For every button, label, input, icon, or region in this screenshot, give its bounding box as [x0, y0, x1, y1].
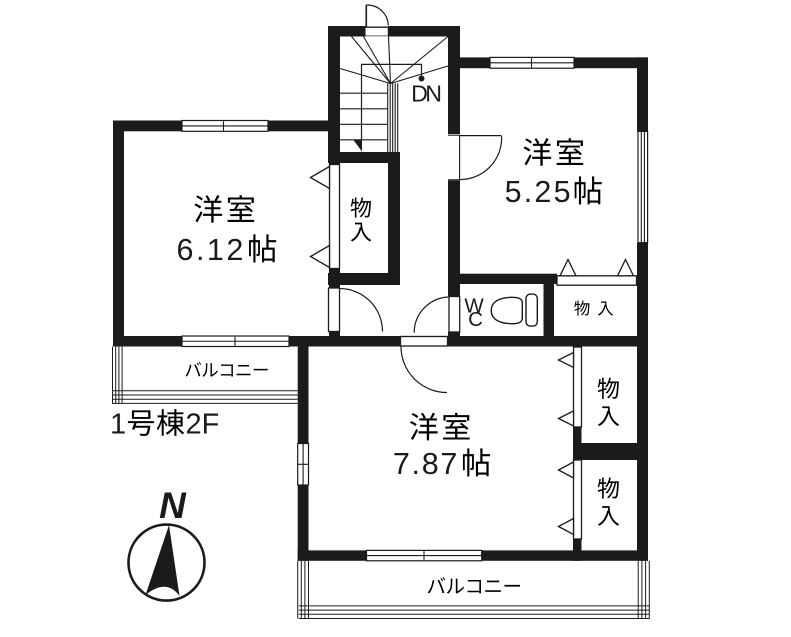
svg-text:N: N	[159, 485, 187, 526]
svg-text:6.12: 6.12	[177, 233, 246, 267]
svg-text:2F: 2F	[186, 409, 220, 441]
svg-text:C: C	[468, 308, 483, 331]
svg-text:DN: DN	[411, 81, 440, 107]
svg-text:1: 1	[110, 409, 126, 441]
svg-text:7.87: 7.87	[393, 447, 459, 481]
svg-text:5.25: 5.25	[505, 175, 573, 209]
